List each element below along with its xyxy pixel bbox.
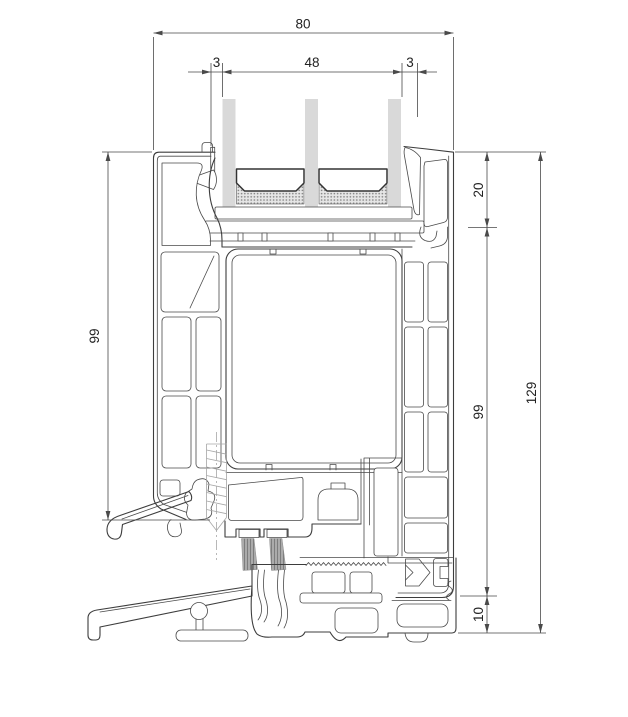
mushroom-notch bbox=[331, 483, 345, 489]
dimension-line bbox=[402, 63, 437, 117]
threshold-cell-3 bbox=[335, 608, 378, 633]
tab bbox=[370, 233, 375, 241]
profile-cross-section: 80 3 48 3 20 99 bbox=[0, 0, 628, 717]
bottom-plate bbox=[225, 521, 361, 537]
rebate-tabs bbox=[238, 233, 400, 241]
left-cell-d bbox=[196, 396, 221, 468]
dimension-value: 10 bbox=[471, 607, 486, 622]
mushroom-cavity bbox=[318, 489, 358, 520]
triple-glazing-unit bbox=[205, 99, 424, 233]
arrowhead bbox=[154, 31, 163, 36]
left-cell-c bbox=[162, 396, 191, 468]
brush-seal-2 bbox=[270, 539, 287, 571]
pedestal-stem bbox=[196, 619, 203, 630]
dimension-20: 20 bbox=[455, 152, 546, 228]
left-cell-b bbox=[196, 317, 221, 391]
frame-cell bbox=[428, 262, 448, 322]
threshold-serration bbox=[306, 563, 386, 566]
tab bbox=[262, 233, 267, 241]
arrowhead bbox=[393, 70, 402, 75]
dimension-value: 99 bbox=[471, 404, 486, 419]
dimension-3-left: 3 bbox=[188, 55, 223, 146]
dimension-value: 80 bbox=[295, 17, 310, 32]
brush-holder-2 bbox=[267, 530, 287, 538]
tab bbox=[238, 233, 243, 241]
spacer-bar-1 bbox=[237, 169, 305, 191]
threshold-foot bbox=[405, 633, 428, 642]
frame-cell bbox=[428, 412, 448, 472]
dimension-value: 99 bbox=[87, 328, 102, 343]
arrowhead bbox=[485, 228, 490, 237]
drip-inner-line bbox=[122, 496, 188, 520]
dimension-value: 129 bbox=[524, 382, 539, 405]
dimension-3-right: 3 bbox=[402, 55, 437, 117]
frame-cell-wide-1 bbox=[405, 477, 448, 518]
arrowhead bbox=[485, 219, 490, 228]
arrowhead bbox=[485, 624, 490, 633]
setting-block-lower bbox=[205, 221, 424, 233]
frame-cell bbox=[405, 262, 424, 322]
dimension-line bbox=[188, 63, 223, 146]
dimension-line bbox=[455, 152, 546, 228]
left-cell-a bbox=[162, 317, 191, 391]
threshold-cell-1 bbox=[312, 572, 345, 593]
arrowhead bbox=[418, 70, 427, 75]
frame-cell bbox=[405, 327, 424, 407]
pedestal-foot bbox=[176, 630, 248, 641]
chamber-notch-2 bbox=[360, 249, 366, 254]
threshold-channel bbox=[300, 593, 382, 603]
technical-drawing-canvas: 80 3 48 3 20 99 bbox=[0, 0, 628, 717]
brush-seals bbox=[242, 539, 287, 571]
left-cell-small bbox=[160, 480, 180, 496]
cavity-side-wall bbox=[209, 158, 222, 247]
frame-cell bbox=[428, 327, 448, 407]
sill-board bbox=[88, 586, 252, 641]
drain-wave-2 bbox=[264, 570, 268, 622]
dimension-value: 48 bbox=[304, 55, 319, 70]
bottom-trapezoid-cell bbox=[229, 477, 304, 520]
threshold-cavity-right bbox=[397, 604, 448, 627]
tab bbox=[395, 233, 400, 241]
dimension-99-right: 99 bbox=[460, 228, 497, 597]
dimension-value: 3 bbox=[213, 55, 221, 70]
threshold-cell-2 bbox=[350, 572, 372, 593]
arrowhead bbox=[445, 31, 454, 36]
bead-foot-hook-2 bbox=[431, 227, 448, 248]
arrowhead bbox=[223, 70, 232, 75]
arrowhead bbox=[106, 511, 111, 520]
dimension-value: 3 bbox=[406, 55, 414, 70]
frame-cell-wide-2 bbox=[405, 523, 448, 553]
dimension-10: 10 bbox=[458, 596, 546, 633]
arrowhead bbox=[538, 152, 543, 161]
brush-holder-1 bbox=[239, 530, 259, 538]
spacer-bar-2 bbox=[319, 169, 387, 191]
glass-pane-middle bbox=[305, 99, 318, 207]
dimension-80: 80 bbox=[154, 17, 454, 151]
left-foot-hook bbox=[167, 520, 181, 537]
dimension-48: 48 bbox=[223, 55, 403, 97]
tab bbox=[328, 233, 333, 241]
arrowhead bbox=[485, 587, 490, 596]
dimension-value: 20 bbox=[471, 182, 486, 197]
pedestal-head bbox=[191, 603, 208, 620]
dimension-line bbox=[154, 33, 454, 150]
arrowhead bbox=[106, 152, 111, 161]
drip-profile bbox=[107, 492, 192, 540]
arrowhead bbox=[538, 624, 543, 633]
steel-chamber-inner bbox=[232, 255, 396, 463]
glazing-bead-cavity bbox=[424, 159, 448, 226]
glazing-seal-wedge bbox=[404, 148, 420, 215]
frame-cell bbox=[405, 412, 424, 472]
drain-wave-3 bbox=[278, 570, 282, 626]
glass-pane-outer bbox=[223, 99, 236, 207]
left-chamber-diagonal-cell bbox=[161, 252, 219, 312]
arrowhead bbox=[485, 596, 490, 605]
frame-mid-cell bbox=[374, 468, 398, 556]
brush-seal-1 bbox=[242, 539, 258, 571]
arrowhead bbox=[485, 152, 490, 161]
chamber-notch-1 bbox=[270, 249, 276, 254]
drain-wave-1 bbox=[258, 570, 262, 620]
setting-block-upper bbox=[215, 207, 412, 219]
dimension-129: 129 bbox=[524, 152, 543, 633]
drain-wave-4 bbox=[284, 570, 288, 628]
arrowhead bbox=[202, 70, 211, 75]
steel-chamber-outer bbox=[226, 249, 402, 469]
glass-pane-inner bbox=[388, 99, 401, 207]
